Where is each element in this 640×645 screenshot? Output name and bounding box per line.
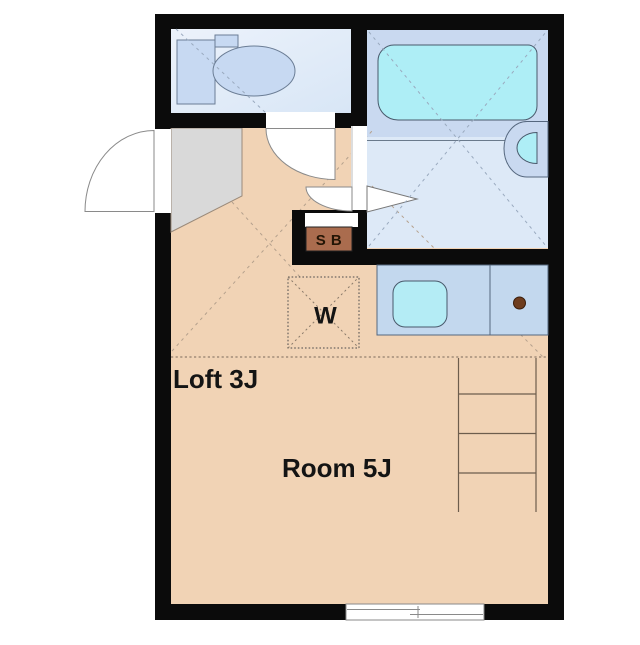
svg-text:W: W bbox=[314, 303, 337, 330]
svg-text:Loft 3J: Loft 3J bbox=[173, 364, 258, 394]
svg-text:S B: S B bbox=[316, 232, 343, 249]
svg-text:Room 5J: Room 5J bbox=[282, 453, 392, 483]
